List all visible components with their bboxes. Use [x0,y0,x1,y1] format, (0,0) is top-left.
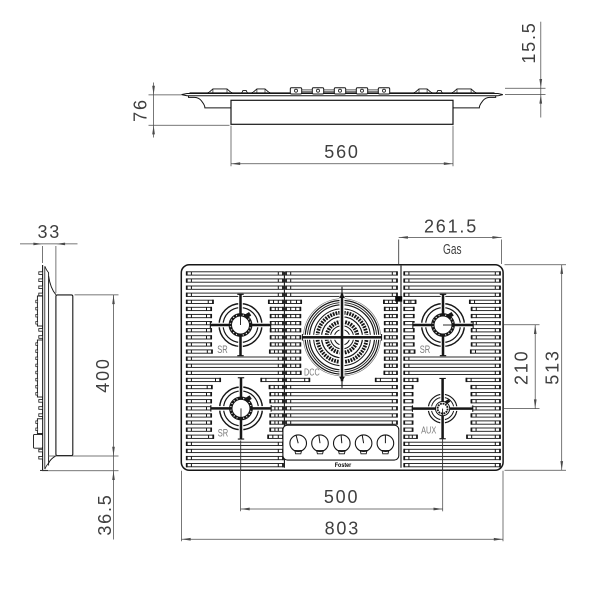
svg-text:513: 513 [543,349,563,384]
svg-text:SR: SR [420,344,431,356]
svg-text:33: 33 [37,222,61,242]
svg-text:36.5: 36.5 [95,493,115,535]
svg-text:210: 210 [512,350,532,385]
svg-text:DCC: DCC [304,366,320,378]
svg-text:560: 560 [324,142,359,162]
svg-text:AUX: AUX [421,425,436,437]
svg-text:500: 500 [324,487,359,507]
svg-text:SR: SR [218,427,229,439]
svg-text:803: 803 [325,519,360,539]
svg-text:Gas: Gas [443,242,462,258]
svg-text:400: 400 [93,357,113,392]
svg-text:Foster: Foster [335,462,352,469]
svg-text:15.5: 15.5 [519,21,539,63]
svg-text:SR: SR [217,344,228,356]
svg-text:76: 76 [131,98,151,122]
svg-text:261.5: 261.5 [424,217,478,237]
